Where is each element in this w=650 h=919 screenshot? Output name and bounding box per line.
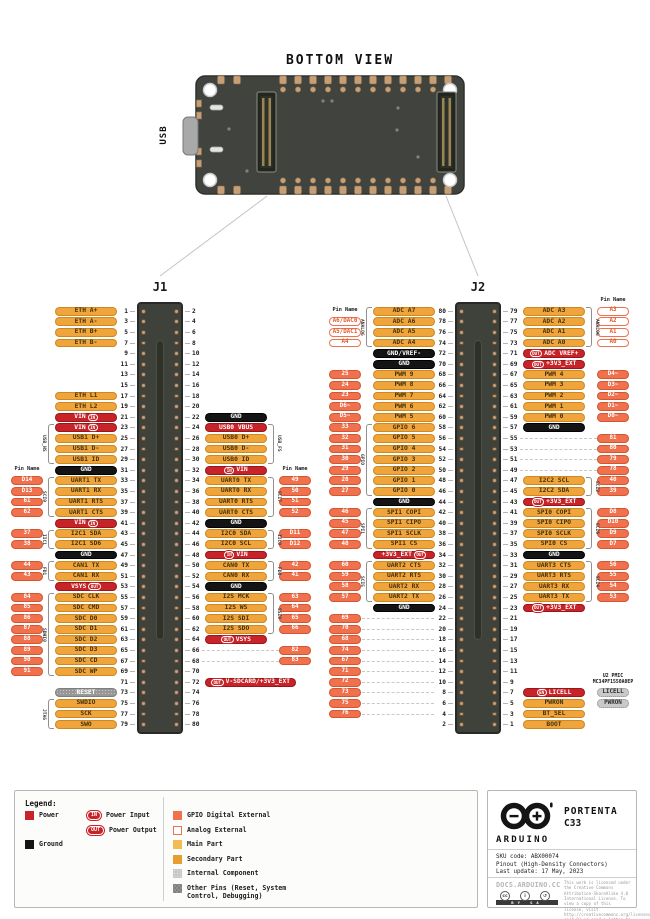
leader-line bbox=[362, 629, 434, 630]
pin-function-label: UART3 RTS bbox=[523, 572, 585, 581]
connector-pin bbox=[459, 542, 464, 547]
pin-number: 64 bbox=[185, 635, 203, 646]
pin-number: 53 bbox=[117, 582, 135, 593]
pin-function-text: UART0 RTS bbox=[219, 499, 253, 505]
pin-number-text: 1 bbox=[510, 721, 514, 728]
pin-function-text: USB1 D+ bbox=[73, 435, 100, 441]
pin-number: 52 bbox=[435, 454, 453, 465]
pin-name-label: 51 bbox=[279, 498, 311, 507]
pin-number: 44 bbox=[185, 529, 203, 540]
pin-number: 9 bbox=[503, 677, 521, 688]
pin-number-text: 13 bbox=[121, 371, 128, 378]
gpio-swatch bbox=[173, 811, 182, 820]
pin-number: 45 bbox=[117, 539, 135, 550]
legend-item-label: Ground bbox=[39, 840, 161, 849]
pin-stub-line bbox=[185, 374, 190, 375]
pin-number: 8 bbox=[435, 688, 453, 699]
pin-function-text: GND bbox=[80, 552, 91, 558]
pin-function-text: VIN bbox=[74, 425, 85, 431]
pin-function-text: UART1 TX bbox=[71, 478, 101, 484]
pin-number: 66 bbox=[185, 645, 203, 656]
pin-number-text: 14 bbox=[439, 658, 446, 665]
pin-row: USB1 D-27USB0 D-28 bbox=[11, 444, 311, 455]
pin-row: ETH B+56 bbox=[11, 327, 311, 338]
connector-pin bbox=[174, 457, 179, 462]
pin-number: 57 bbox=[503, 423, 521, 434]
connector-pin bbox=[141, 330, 146, 335]
pin-number-text: 72 bbox=[439, 350, 446, 357]
pin-row: GND47INVIN48 bbox=[11, 550, 311, 561]
edge-pad bbox=[385, 186, 392, 194]
pin-stub-line bbox=[448, 512, 453, 513]
pin-name-label: 75 bbox=[329, 699, 361, 708]
pin-number: 55 bbox=[503, 433, 521, 444]
pin-name-label: 64 bbox=[279, 604, 311, 613]
pin-number-text: 51 bbox=[510, 456, 517, 463]
license-text: This work is licensed under the Creative… bbox=[564, 880, 632, 919]
brand-name: ARDUINO bbox=[496, 835, 549, 845]
pin-number-text: 7 bbox=[124, 340, 128, 347]
connector-pin bbox=[141, 542, 146, 547]
pin-function-text: +3V3_EXT bbox=[546, 499, 576, 505]
power-in-badge: IN bbox=[88, 414, 98, 421]
pin-number-text: 8 bbox=[192, 340, 196, 347]
pin-name-label: 78 bbox=[597, 466, 629, 475]
group-label: SCI7 bbox=[276, 478, 281, 516]
edge-pad bbox=[197, 100, 202, 107]
pin-stub-line bbox=[448, 682, 453, 683]
group-bracket-sci2: SCI2 bbox=[586, 477, 592, 496]
connector-pin bbox=[141, 500, 146, 505]
pin-function-text: GND bbox=[80, 467, 91, 473]
pin-number: 31 bbox=[503, 560, 521, 571]
pin-stub-line bbox=[448, 417, 453, 418]
pin-function-label: USB0 ID bbox=[205, 455, 267, 464]
pin-number: 33 bbox=[117, 476, 135, 487]
pin-function-label: UART0 TX bbox=[205, 476, 267, 485]
connector-pin bbox=[141, 319, 146, 324]
last-update: Last update: 17 May, 2023 bbox=[496, 869, 583, 875]
connector-pin bbox=[174, 606, 179, 611]
pin-row: GND44OUT+3V3_EXT43 bbox=[329, 497, 629, 508]
pin-function-text: UART0 TX bbox=[221, 478, 251, 484]
pin-number: 78 bbox=[435, 317, 453, 328]
connector-pin bbox=[492, 394, 497, 399]
pin-number-text: 29 bbox=[510, 573, 517, 580]
pin-function-label: OUTV-SDCARD/+3V3_EXT bbox=[205, 678, 296, 687]
connector-pin bbox=[492, 712, 497, 717]
internal-swatch bbox=[173, 869, 182, 878]
via-dot bbox=[395, 128, 398, 131]
pin-stub-line bbox=[185, 639, 190, 640]
pin-number-text: 2 bbox=[442, 721, 446, 728]
pin-number: 43 bbox=[503, 497, 521, 508]
pin-number: 4 bbox=[185, 317, 203, 328]
pin-row: SWO7980 bbox=[11, 719, 311, 730]
connector-pin bbox=[141, 616, 146, 621]
pin-function-label: ADC A2 bbox=[523, 317, 585, 326]
leader-line bbox=[202, 661, 279, 662]
pin-number-text: 75 bbox=[510, 329, 517, 336]
pin-function-text: SWDIO bbox=[77, 700, 96, 706]
connector-pin bbox=[459, 563, 464, 568]
legend-item-label: GPIO Digital External bbox=[187, 811, 309, 820]
pin-number: 33 bbox=[503, 550, 521, 561]
pin-number: 12 bbox=[435, 666, 453, 677]
pin-number: 41 bbox=[117, 518, 135, 529]
connector-pin bbox=[492, 701, 497, 706]
pin-number-text: 20 bbox=[439, 626, 446, 633]
pin-number-text: 44 bbox=[439, 499, 446, 506]
connector-pin bbox=[174, 690, 179, 695]
pinout-diagram: BOTTOM VIEW USB J1ETH A+12ETH A-34ETH B+… bbox=[0, 0, 650, 919]
pin-function-text: ADC A2 bbox=[543, 319, 566, 325]
pin-number-text: 27 bbox=[121, 446, 128, 453]
by-icon: i bbox=[520, 891, 530, 901]
pin-function-label: VININ bbox=[55, 413, 117, 422]
pin-function-label: SDC WP bbox=[55, 667, 117, 676]
connector-pin bbox=[459, 415, 464, 420]
pin-stub-line bbox=[448, 597, 453, 598]
pin-function-text: +3V3_EXT bbox=[546, 361, 576, 367]
pin-function-label: INVIN bbox=[205, 551, 267, 560]
pin-number-text: 48 bbox=[439, 477, 446, 484]
connector-pin bbox=[459, 584, 464, 589]
connector-pin bbox=[174, 351, 179, 356]
pin-number-text: 5 bbox=[510, 700, 514, 707]
pin-name-label: 42 bbox=[279, 561, 311, 570]
pin-function-label: PWM 2 bbox=[523, 392, 585, 401]
connector-pin bbox=[492, 680, 497, 685]
pin-number-text: 47 bbox=[121, 552, 128, 559]
pin-stub-line bbox=[503, 608, 508, 609]
pin-row: 71OUTV-SDCARD/+3V3_EXT72 bbox=[11, 677, 311, 688]
pin-number: 45 bbox=[503, 486, 521, 497]
pin-name-header: Pin Name bbox=[596, 297, 630, 303]
pin-function-text: SDC CMD bbox=[73, 605, 100, 611]
leader-line-j1 bbox=[160, 196, 267, 276]
pin-number-text: 42 bbox=[192, 520, 199, 527]
connector-pin bbox=[174, 574, 179, 579]
pin-function-label: SPI0 CIPO bbox=[523, 519, 585, 528]
pin-stub-line bbox=[185, 586, 190, 587]
pin-function-label: ETH L1 bbox=[55, 392, 117, 401]
power-out-badge: OUT bbox=[221, 636, 234, 643]
pin-row: 59UART2 RTS3055UART3 RTS29 bbox=[329, 571, 629, 582]
group-bracket-iic1: IIC1 bbox=[48, 530, 54, 549]
pin-name-label: D5~ bbox=[329, 413, 361, 422]
pin-stub-line bbox=[503, 449, 508, 450]
pin-number: 30 bbox=[185, 454, 203, 465]
pin-stub-line bbox=[503, 692, 508, 693]
pin-function-label: GPIO 4 bbox=[373, 445, 435, 454]
pin-stub-line bbox=[185, 438, 190, 439]
pin-number: 10 bbox=[435, 677, 453, 688]
pin-stub-line bbox=[448, 618, 453, 619]
pin-stub-line bbox=[503, 523, 508, 524]
connector-j1: J1ETH A+12ETH A-34ETH B+56ETH B-78910111… bbox=[11, 306, 311, 730]
pin-function-text: SPI1 CIPO bbox=[387, 520, 421, 526]
pin-stub-line bbox=[130, 321, 135, 322]
group-label: SCI6 bbox=[594, 509, 599, 547]
pin-number-text: 26 bbox=[192, 435, 199, 442]
connector-pin bbox=[459, 341, 464, 346]
connector-pin bbox=[459, 680, 464, 685]
pin-function-label: CAN1 RX bbox=[55, 572, 117, 581]
pin-function-text: BOOT bbox=[546, 722, 561, 728]
connector-label: J1 bbox=[137, 280, 183, 294]
pin-stub-line bbox=[130, 438, 135, 439]
pin-number-text: 75 bbox=[121, 700, 128, 707]
pin-number: 70 bbox=[435, 359, 453, 370]
edge-pad bbox=[280, 186, 287, 194]
pin-function-text: I2S SDO bbox=[223, 626, 250, 632]
pin-stub-line bbox=[130, 332, 135, 333]
pin-name-label: 54 bbox=[597, 582, 629, 591]
pin-name-label: 39 bbox=[597, 487, 629, 496]
connector-pin bbox=[174, 701, 179, 706]
pin-function-text: RESET bbox=[77, 690, 96, 696]
connector-pin bbox=[492, 722, 497, 727]
connector-pin bbox=[459, 701, 464, 706]
pin-function-label: UART1 RX bbox=[55, 487, 117, 496]
pin-row: SCK7778 bbox=[11, 709, 311, 720]
pin-function-text: SPI1 SCLK bbox=[387, 531, 421, 537]
pin-stub-line bbox=[185, 470, 190, 471]
pin-number-text: 41 bbox=[510, 509, 517, 516]
pin-number-text: 46 bbox=[192, 541, 199, 548]
pin-number: 50 bbox=[435, 465, 453, 476]
pin-row: 62UART1 CTS3952UART0 CTS40 bbox=[11, 507, 311, 518]
pin-function-label: OUT+3V3_EXT bbox=[523, 360, 585, 369]
pin-function-label: CAN0 TX bbox=[205, 561, 267, 570]
pin-number: 28 bbox=[435, 582, 453, 593]
pin-function-label: GND bbox=[523, 551, 585, 560]
through-hole bbox=[385, 87, 390, 92]
group-bracket-spi1: SPI1 bbox=[366, 508, 372, 548]
pin-row: 32GPIO 5568155 bbox=[329, 433, 629, 444]
pin-number-text: 21 bbox=[510, 615, 517, 622]
pin-function-text: SDC D1 bbox=[75, 626, 98, 632]
pin-name-label: 37 bbox=[11, 529, 43, 538]
group-bracket-usb_fs: USB_FS bbox=[268, 424, 274, 464]
pin-stub-line bbox=[448, 470, 453, 471]
pin-stub-line bbox=[185, 396, 190, 397]
pin-function-label: UART3 TX bbox=[523, 593, 585, 602]
pin-name-label: 86 bbox=[11, 614, 43, 623]
pin-stub-line bbox=[130, 639, 135, 640]
pin-number-text: 71 bbox=[510, 350, 517, 357]
pin-name-label: 48 bbox=[329, 540, 361, 549]
pin-stub-line bbox=[185, 523, 190, 524]
pin-function-text: USB0 VBUS bbox=[219, 425, 253, 431]
connector-pin bbox=[141, 351, 146, 356]
pin-number: 78 bbox=[185, 709, 203, 720]
through-hole bbox=[355, 87, 360, 92]
pin-function-text: GPIO 0 bbox=[393, 488, 416, 494]
pin-number: 14 bbox=[185, 370, 203, 381]
pin-function-text: ADC A5 bbox=[393, 329, 416, 335]
connector-pin bbox=[174, 510, 179, 515]
pin-function-label: SPI0 CS bbox=[523, 540, 585, 549]
connector-pin bbox=[141, 606, 146, 611]
pin-name-label: D10 bbox=[597, 519, 629, 528]
pin-stub-line bbox=[503, 639, 508, 640]
pin-number-text: 53 bbox=[121, 583, 128, 590]
pin-row: D6~PWM 662D1~PWM 161 bbox=[329, 401, 629, 412]
pin-number: 2 bbox=[435, 719, 453, 730]
connector-pin bbox=[459, 383, 464, 388]
pin-stub-line bbox=[185, 385, 190, 386]
pin-function-label: SPI0 COPI bbox=[523, 508, 585, 517]
connector-pin bbox=[459, 712, 464, 717]
pin-function-label: UART2 CTS bbox=[373, 561, 435, 570]
pin-name-label: 63 bbox=[279, 593, 311, 602]
pin-row: USB1 D+25USB0 D+26 bbox=[11, 433, 311, 444]
pin-number-text: 66 bbox=[439, 382, 446, 389]
pin-number: 54 bbox=[185, 582, 203, 593]
pin-number: 62 bbox=[185, 624, 203, 635]
pin-name-header: Pin Name bbox=[328, 307, 362, 313]
pin-name-label: 84 bbox=[11, 593, 43, 602]
pin-number-text: 65 bbox=[510, 382, 517, 389]
pin-function-label: OUT+3V3_EXT bbox=[523, 498, 585, 507]
pin-row: ETH A+12 bbox=[11, 306, 311, 317]
pin-stub-line bbox=[130, 343, 135, 344]
edge-pad bbox=[218, 76, 225, 84]
pin-number: 17 bbox=[117, 391, 135, 402]
pin-number-text: 39 bbox=[510, 520, 517, 527]
through-hole bbox=[430, 178, 435, 183]
pin-number-text: 56 bbox=[439, 435, 446, 442]
pin-number-text: 3 bbox=[124, 318, 128, 325]
pin-function-label: PWM 3 bbox=[523, 381, 585, 390]
group-bracket-gpio: GPIO bbox=[366, 424, 372, 496]
pin-function-label: UART2 TX bbox=[373, 593, 435, 602]
pin-number: 48 bbox=[185, 550, 203, 561]
pin-number: 76 bbox=[435, 327, 453, 338]
pin-number-text: 74 bbox=[192, 689, 199, 696]
pin-number-text: 76 bbox=[192, 700, 199, 707]
group-bracket-sci9: SCI9 bbox=[48, 477, 54, 517]
connector-pin bbox=[174, 489, 179, 494]
pin-number: 72 bbox=[435, 348, 453, 359]
pin-function-label: I2S SDI bbox=[205, 614, 267, 623]
pin-stub-line bbox=[448, 724, 453, 725]
pin-function-text: USB0 D+ bbox=[223, 435, 250, 441]
pin-stub-line bbox=[130, 449, 135, 450]
pin-function-text: ADC A1 bbox=[543, 329, 566, 335]
pin-function-text: I2C1 SDA bbox=[71, 531, 101, 537]
through-hole bbox=[415, 178, 420, 183]
group-label: ANALOG bbox=[359, 308, 364, 346]
pin-number: 58 bbox=[185, 603, 203, 614]
pin-number-text: 62 bbox=[192, 626, 199, 633]
pin-stub-line bbox=[503, 618, 508, 619]
leader-line bbox=[202, 650, 279, 651]
legend-item: Secondary Part bbox=[173, 855, 309, 864]
pin-stub-line bbox=[185, 597, 190, 598]
power-in-badge: IN bbox=[224, 551, 234, 558]
pin-row: D13UART1 RX3550UART0 RX36 bbox=[11, 486, 311, 497]
pin-stub-line bbox=[448, 459, 453, 460]
pin-number: 57 bbox=[117, 603, 135, 614]
pin-stub-line bbox=[448, 629, 453, 630]
pin-function-text: USB1 D- bbox=[73, 446, 100, 452]
connector-pin bbox=[492, 510, 497, 515]
pin-stub-line bbox=[448, 343, 453, 344]
group-label: SSI0 bbox=[276, 594, 281, 632]
pin-function-label: VSYSOUT bbox=[55, 582, 117, 591]
group-label: SCI4 bbox=[594, 562, 599, 600]
pin-number-text: 11 bbox=[510, 668, 517, 675]
pin-number-text: 29 bbox=[121, 456, 128, 463]
connector-pin bbox=[459, 659, 464, 664]
pin-stub-line bbox=[185, 533, 190, 534]
pin-number: 69 bbox=[503, 359, 521, 370]
pin-number-text: 79 bbox=[121, 721, 128, 728]
pin-number: 71 bbox=[117, 677, 135, 688]
pin-stub-line bbox=[448, 608, 453, 609]
pin-function-label: SWDIO bbox=[55, 699, 117, 708]
connector-pin bbox=[492, 436, 497, 441]
connector-pin bbox=[174, 637, 179, 642]
pin-name-label: A5/DAC1 bbox=[329, 328, 361, 337]
connector-pin bbox=[141, 531, 146, 536]
other-swatch bbox=[173, 884, 182, 893]
connector-pin bbox=[174, 659, 179, 664]
pin-number-text: 64 bbox=[192, 636, 199, 643]
pin-number-text: 49 bbox=[510, 467, 517, 474]
pin-row: 24PWM 866D3~PWM 365 bbox=[329, 380, 629, 391]
pin-number: 56 bbox=[185, 592, 203, 603]
pin-function-label: RESET bbox=[55, 688, 117, 697]
pin-function-text: VIN bbox=[236, 467, 247, 473]
pin-number: 24 bbox=[435, 603, 453, 614]
pin-stub-line bbox=[185, 724, 190, 725]
connector-pin bbox=[174, 500, 179, 505]
pin-stub-line bbox=[503, 321, 508, 322]
pin-function-label: SDC D2 bbox=[55, 635, 117, 644]
pin-number: 60 bbox=[435, 412, 453, 423]
pin-number-text: 39 bbox=[121, 509, 128, 516]
group-label: JTAG bbox=[41, 700, 46, 728]
through-hole bbox=[430, 87, 435, 92]
pin-number: 42 bbox=[185, 518, 203, 529]
pin-function-label: UART2 RTS bbox=[373, 572, 435, 581]
pin-function-text: I2C1 SD6 bbox=[71, 541, 101, 547]
pin-number-text: 13 bbox=[510, 658, 517, 665]
group-bracket-iic0: IIC0 bbox=[268, 530, 274, 549]
pin-row: 28GPIO 14840I2C2 SCL47 bbox=[329, 476, 629, 487]
edge-pad bbox=[325, 76, 332, 84]
pin-function-label: ADC A3 bbox=[523, 307, 585, 316]
pin-number: 1 bbox=[117, 306, 135, 317]
connector-pin bbox=[459, 425, 464, 430]
pin-number: 48 bbox=[435, 476, 453, 487]
pin-name-label: 50 bbox=[279, 487, 311, 496]
legend-title: Legend: bbox=[25, 799, 57, 808]
connector-pin bbox=[174, 627, 179, 632]
pin-function-text: ETH B- bbox=[75, 340, 98, 346]
edge-pad bbox=[430, 186, 437, 194]
pin-function-label: I2S WS bbox=[205, 604, 267, 613]
pin-name-label: A3 bbox=[597, 307, 629, 316]
pin-stub-line bbox=[503, 714, 508, 715]
pin-function-label: GPIO 6 bbox=[373, 423, 435, 432]
pin-stub-line bbox=[130, 555, 135, 556]
pin-number: 40 bbox=[185, 507, 203, 518]
